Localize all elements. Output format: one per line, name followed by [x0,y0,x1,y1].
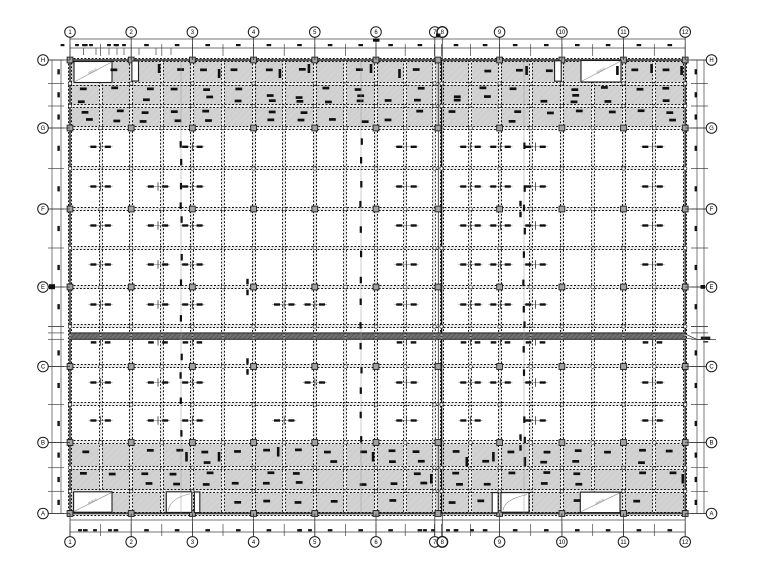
svg-text:B: B [709,441,713,447]
svg-text:G: G [709,126,714,132]
svg-text:C: C [41,365,46,371]
svg-text:C: C [709,365,714,371]
svg-text:B: B [41,441,45,447]
svg-text:10: 10 [559,540,566,546]
svg-text:F: F [710,207,714,213]
svg-text:F: F [41,207,45,213]
svg-text:G: G [41,126,46,132]
svg-text:E: E [41,285,45,291]
svg-text:H: H [41,58,45,64]
svg-text:A: A [709,512,713,518]
svg-text:11: 11 [620,540,627,546]
svg-text:12: 12 [682,30,689,36]
svg-text:E: E [709,285,713,291]
svg-text:12: 12 [682,540,689,546]
svg-text:11: 11 [620,30,627,36]
svg-text:A: A [41,512,45,518]
svg-text:H: H [709,58,713,64]
svg-text:10: 10 [559,30,566,36]
